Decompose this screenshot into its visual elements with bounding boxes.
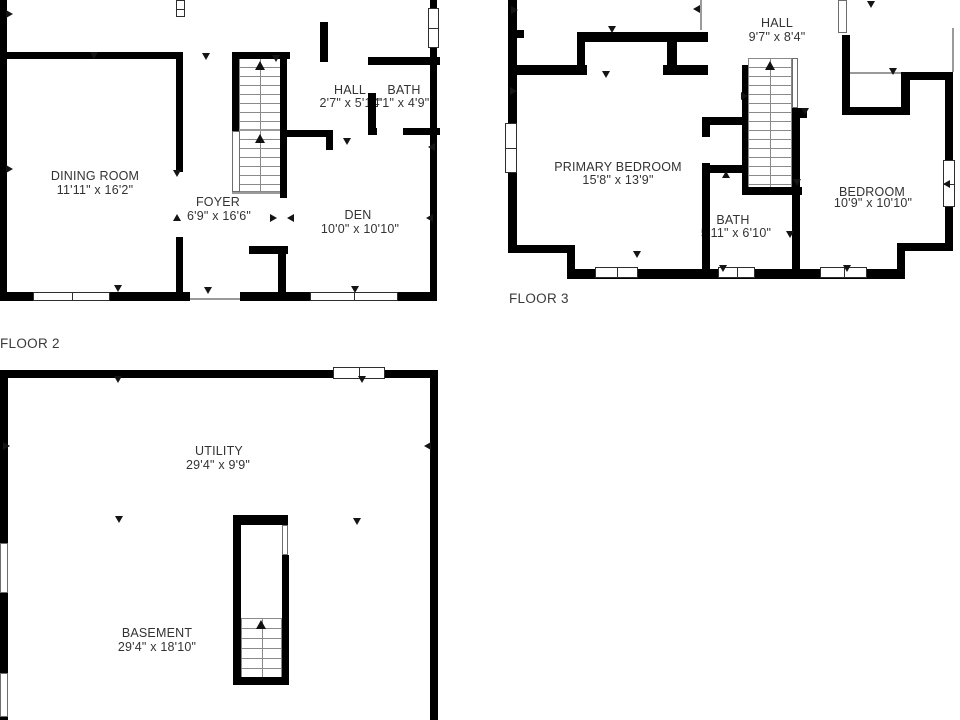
- window: [33, 292, 110, 301]
- dimension-arrow: [602, 71, 610, 78]
- dimension-arrow: [90, 52, 98, 59]
- wall: [901, 72, 910, 115]
- dimension-arrow: [693, 5, 700, 13]
- wall: [702, 163, 710, 272]
- door-sill-line: [190, 298, 240, 300]
- room-dims-bath-f2: 4'1" x 4'9": [373, 97, 430, 110]
- wall: [430, 0, 437, 8]
- window: [428, 8, 439, 48]
- dimension-arrow: [114, 376, 122, 383]
- wall: [945, 207, 953, 245]
- stair-direction-arrow-icon: [255, 134, 265, 143]
- room-dims-foyer: 6'9" x 16'6": [187, 210, 251, 223]
- stair-direction-arrow-icon: [256, 620, 266, 629]
- dimension-arrow: [722, 171, 730, 178]
- dimension-arrow: [426, 214, 433, 222]
- window: [595, 267, 638, 278]
- stair-edge-line: [232, 192, 287, 194]
- window: [838, 0, 847, 33]
- dimension-arrow: [173, 214, 181, 221]
- wall: [510, 245, 575, 253]
- dimension-arrow: [3, 442, 10, 450]
- dimension-arrow: [511, 6, 518, 14]
- cut-wall-line: [700, 0, 702, 30]
- dimension-arrow: [428, 143, 435, 151]
- dimension-arrow: [6, 165, 13, 173]
- room-name-hall-f3: HALL: [761, 17, 793, 30]
- wall: [282, 555, 289, 685]
- dimension-arrow: [287, 214, 294, 222]
- wall: [0, 374, 8, 543]
- wall: [842, 35, 850, 115]
- window: [310, 292, 398, 301]
- wall: [577, 42, 585, 75]
- wall: [320, 22, 328, 62]
- dimension-arrow: [6, 10, 13, 18]
- stair-landing-line: [239, 129, 281, 131]
- wall: [842, 107, 910, 115]
- wall: [742, 65, 748, 195]
- wall: [232, 52, 239, 131]
- room-dims-basement: 29'4" x 18'10": [118, 641, 196, 654]
- wall: [430, 48, 437, 295]
- room-dims-utility: 29'4" x 9'9": [186, 459, 250, 472]
- window: [0, 543, 8, 593]
- wall: [280, 52, 287, 198]
- stair-direction-arrow-icon: [255, 61, 265, 70]
- wall: [176, 237, 183, 295]
- wall: [945, 80, 953, 160]
- dimension-arrow: [351, 286, 359, 293]
- room-name-basement: BASEMENT: [122, 627, 192, 640]
- dimension-arrow: [270, 214, 277, 222]
- dimension-arrow: [353, 518, 361, 525]
- wall: [0, 593, 8, 673]
- dimension-arrow: [867, 1, 875, 8]
- wall: [430, 370, 438, 720]
- stair-rail: [282, 525, 288, 555]
- dimension-arrow: [943, 180, 950, 188]
- dimension-arrow: [173, 170, 181, 177]
- dimension-arrow: [719, 265, 727, 272]
- dimension-arrow: [204, 287, 212, 294]
- wall: [897, 243, 953, 251]
- room-name-den: DEN: [345, 209, 372, 222]
- room-name-utility: UTILITY: [195, 445, 243, 458]
- dimension-arrow: [115, 516, 123, 523]
- room-name-dining: DINING ROOM: [51, 170, 139, 183]
- wall: [176, 52, 183, 172]
- dimension-arrow: [202, 53, 210, 60]
- room-dims-primary-bedroom: 15'8" x 13'9": [582, 174, 653, 187]
- dimension-arrow: [343, 138, 351, 145]
- wall: [0, 0, 7, 300]
- wall: [233, 677, 289, 685]
- floor2-label: FLOOR 2: [0, 336, 60, 351]
- staircase: [748, 58, 792, 192]
- dimension-arrow: [114, 285, 122, 292]
- dimension-arrow: [424, 442, 431, 450]
- room-dims-dining: 11'11" x 16'2": [57, 184, 133, 197]
- dimension-arrow: [741, 92, 748, 100]
- wall: [517, 30, 524, 38]
- dimension-arrow: [358, 376, 366, 383]
- floor-plan-canvas: DINING ROOM 11'11" x 16'2" FOYER 6'9" x …: [0, 0, 960, 720]
- dimension-arrow: [793, 179, 801, 186]
- dimension-arrow: [843, 265, 851, 272]
- stair-rail: [792, 58, 798, 108]
- dimension-arrow: [786, 231, 794, 238]
- wall: [326, 130, 333, 150]
- floor3-label: FLOOR 3: [509, 291, 569, 306]
- window: [0, 673, 8, 717]
- dimension-arrow: [801, 108, 809, 115]
- stair-direction-arrow-icon: [765, 61, 775, 70]
- wall: [663, 65, 708, 75]
- staircase: [239, 58, 281, 192]
- dimension-arrow: [510, 87, 517, 95]
- room-name-foyer: FOYER: [196, 196, 240, 209]
- wall: [233, 515, 241, 685]
- dimension-arrow: [889, 68, 897, 75]
- room-dims-bath-f3: 5'11" x 6'10": [701, 227, 771, 240]
- wall: [508, 173, 517, 253]
- wall: [278, 246, 286, 296]
- dimension-arrow: [633, 251, 641, 258]
- wall: [508, 0, 517, 123]
- room-dims-bedroom: 10'9" x 10'10": [834, 197, 912, 210]
- dimension-arrow: [272, 55, 280, 62]
- wall: [702, 125, 710, 137]
- room-dims-den: 10'0" x 10'10": [321, 223, 399, 236]
- dimension-arrow: [608, 26, 616, 33]
- wall: [577, 32, 708, 42]
- window: [176, 0, 185, 17]
- wall: [368, 128, 377, 135]
- window: [505, 123, 517, 173]
- wall: [792, 108, 800, 272]
- stair-rail: [232, 131, 240, 192]
- cut-wall-line: [952, 28, 954, 72]
- room-dims-hall-f3: 9'7" x 8'4": [749, 31, 806, 44]
- wall: [233, 515, 288, 525]
- wall: [910, 72, 953, 80]
